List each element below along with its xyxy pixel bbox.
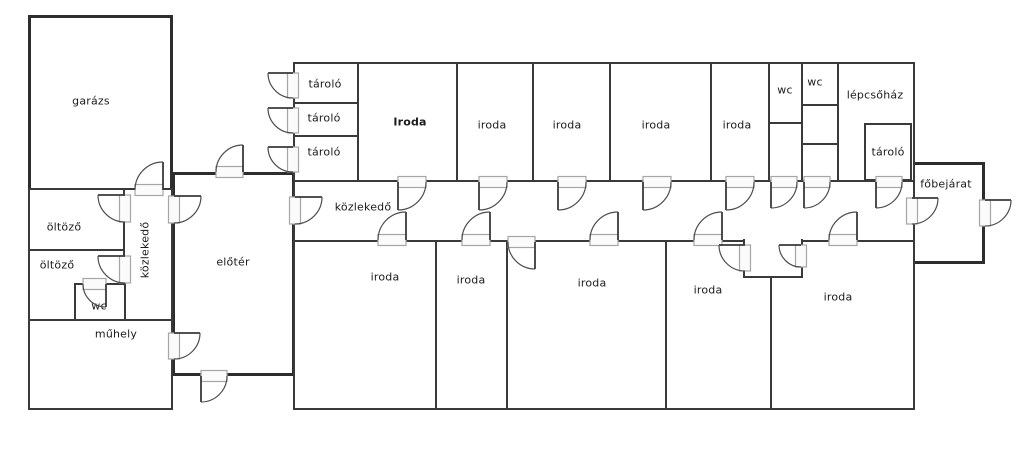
- room-label-kozlekedo-h: közlekedő: [335, 202, 392, 213]
- room-label-wc-t1: wc: [777, 85, 792, 96]
- room-label-iroda-t2: iroda: [478, 120, 507, 131]
- room-label-iroda-t4: iroda: [642, 120, 671, 131]
- room-tarolo-3: [293, 135, 359, 182]
- room-label-kozlekedo-v: közlekedő: [140, 222, 151, 279]
- room-wc-t2-bot: [801, 143, 839, 182]
- room-label-iroda-t1: Iroda: [393, 117, 426, 128]
- room-label-fobejarat: főbejárat: [920, 179, 972, 190]
- room-label-tarolo-1: tároló: [308, 79, 341, 90]
- room-eloter: [172, 172, 295, 376]
- room-label-tarolo-2: tároló: [307, 113, 340, 124]
- room-label-oltozo-2: öltöző: [40, 260, 75, 271]
- room-label-eloter: előtér: [216, 257, 249, 268]
- room-label-iroda-b5: iroda: [824, 292, 853, 303]
- room-entry-nook: [743, 239, 803, 278]
- room-label-lepcsohaz: lépcsőház: [847, 90, 904, 101]
- room-label-iroda-b3: iroda: [578, 278, 607, 289]
- room-label-iroda-b1: iroda: [371, 272, 400, 283]
- room-label-iroda-b4: iroda: [694, 285, 723, 296]
- room-label-oltozo-1: öltöző: [47, 222, 82, 233]
- room-label-iroda-b2: iroda: [457, 275, 486, 286]
- room-wc-t1-store: [768, 122, 803, 182]
- room-label-tarolo-4: tároló: [871, 147, 904, 158]
- room-wc-t2-mid: [801, 104, 839, 145]
- room-label-garazs: garázs: [72, 96, 110, 107]
- room-label-muhely: műhely: [95, 329, 137, 340]
- room-label-iroda-t3: iroda: [553, 120, 582, 131]
- floor-plan: garázselőtérfőbejáratközlekedőöltözőöltö…: [0, 0, 1024, 450]
- room-oltozo-1: [28, 188, 125, 251]
- room-iroda-b1: [293, 240, 437, 410]
- room-iroda-b2: [435, 240, 508, 410]
- room-label-iroda-t5: iroda: [723, 120, 752, 131]
- room-label-wc-t2: wc: [807, 77, 822, 88]
- room-label-wc-left: wc: [91, 301, 106, 312]
- room-label-tarolo-3: tároló: [307, 147, 340, 158]
- room-iroda-b3: [506, 240, 667, 410]
